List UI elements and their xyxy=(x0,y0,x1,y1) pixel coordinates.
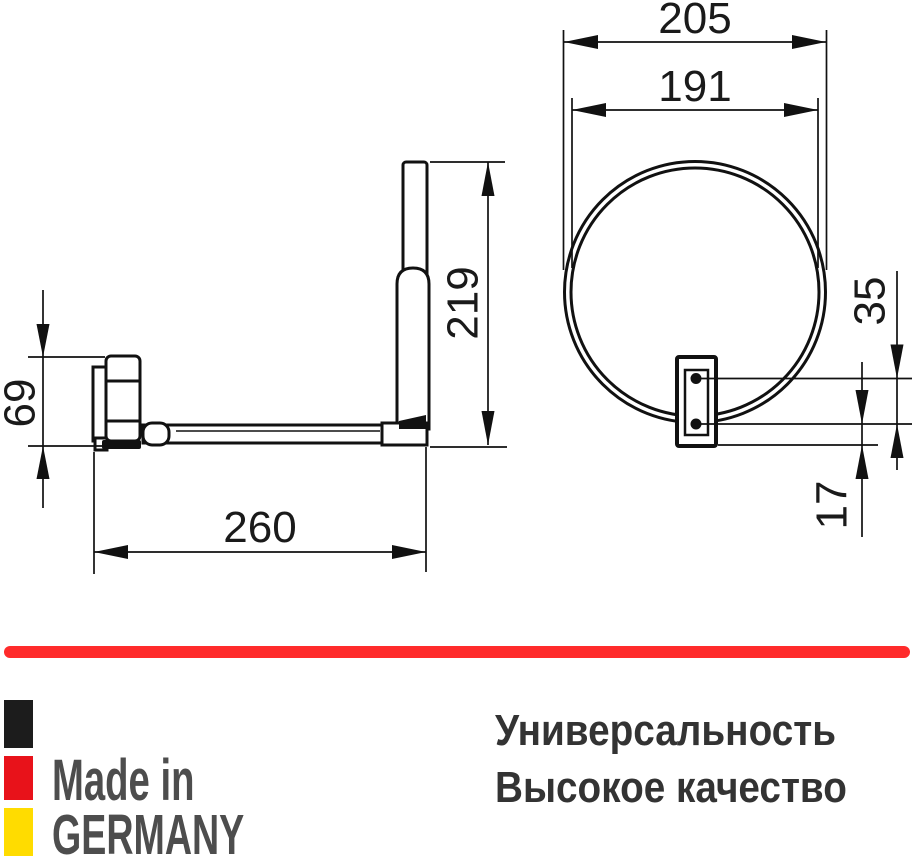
arrowhead-down xyxy=(482,411,495,445)
tagline-line2: Высокое качество xyxy=(495,762,847,812)
swivel-arm xyxy=(143,425,389,443)
arrowhead-right xyxy=(392,545,426,559)
dim-label-35: 35 xyxy=(845,277,894,326)
arrowhead-left xyxy=(572,103,606,117)
arrowhead-down xyxy=(891,345,904,379)
product-technical-drawing: 69 260 219 xyxy=(0,0,914,856)
arrowhead-right xyxy=(792,35,826,49)
arrowhead-right xyxy=(784,103,818,117)
dim-label-69: 69 xyxy=(0,379,44,428)
swivel-arm-left-cap xyxy=(143,423,169,445)
dim-hole-offset xyxy=(856,362,869,537)
dim-label-205: 205 xyxy=(658,0,731,43)
arrowhead-left xyxy=(564,35,598,49)
mounting-hole-bottom xyxy=(691,419,702,430)
arrowhead-left xyxy=(94,545,128,559)
flag-black-stripe xyxy=(4,700,33,748)
side-view xyxy=(93,162,429,450)
mounting-hole-top xyxy=(691,373,702,384)
germany-flag xyxy=(4,700,33,856)
flag-red-stripe xyxy=(4,756,33,800)
front-view xyxy=(565,162,826,447)
arrowhead-down xyxy=(37,324,50,357)
dim-mirror-diameter xyxy=(572,98,818,268)
tagline-line1: Универсальность xyxy=(495,705,836,755)
arrowhead-down xyxy=(856,390,869,424)
dim-label-17: 17 xyxy=(807,481,856,530)
arrowhead-up xyxy=(482,162,495,196)
dim-label-191: 191 xyxy=(658,62,731,111)
flag-yellow-stripe xyxy=(4,808,33,856)
arrowhead-up xyxy=(856,445,869,479)
red-divider-line xyxy=(4,646,910,658)
wall-bracket-side xyxy=(106,356,140,441)
wall-bracket-base-bar xyxy=(102,440,141,449)
arrowhead-up xyxy=(37,446,50,479)
germany-label: GERMANY xyxy=(52,803,244,856)
post-pivot-arm xyxy=(397,268,429,429)
dim-label-219: 219 xyxy=(438,266,487,339)
dim-label-260: 260 xyxy=(223,503,296,552)
arrowhead-up xyxy=(891,424,904,458)
